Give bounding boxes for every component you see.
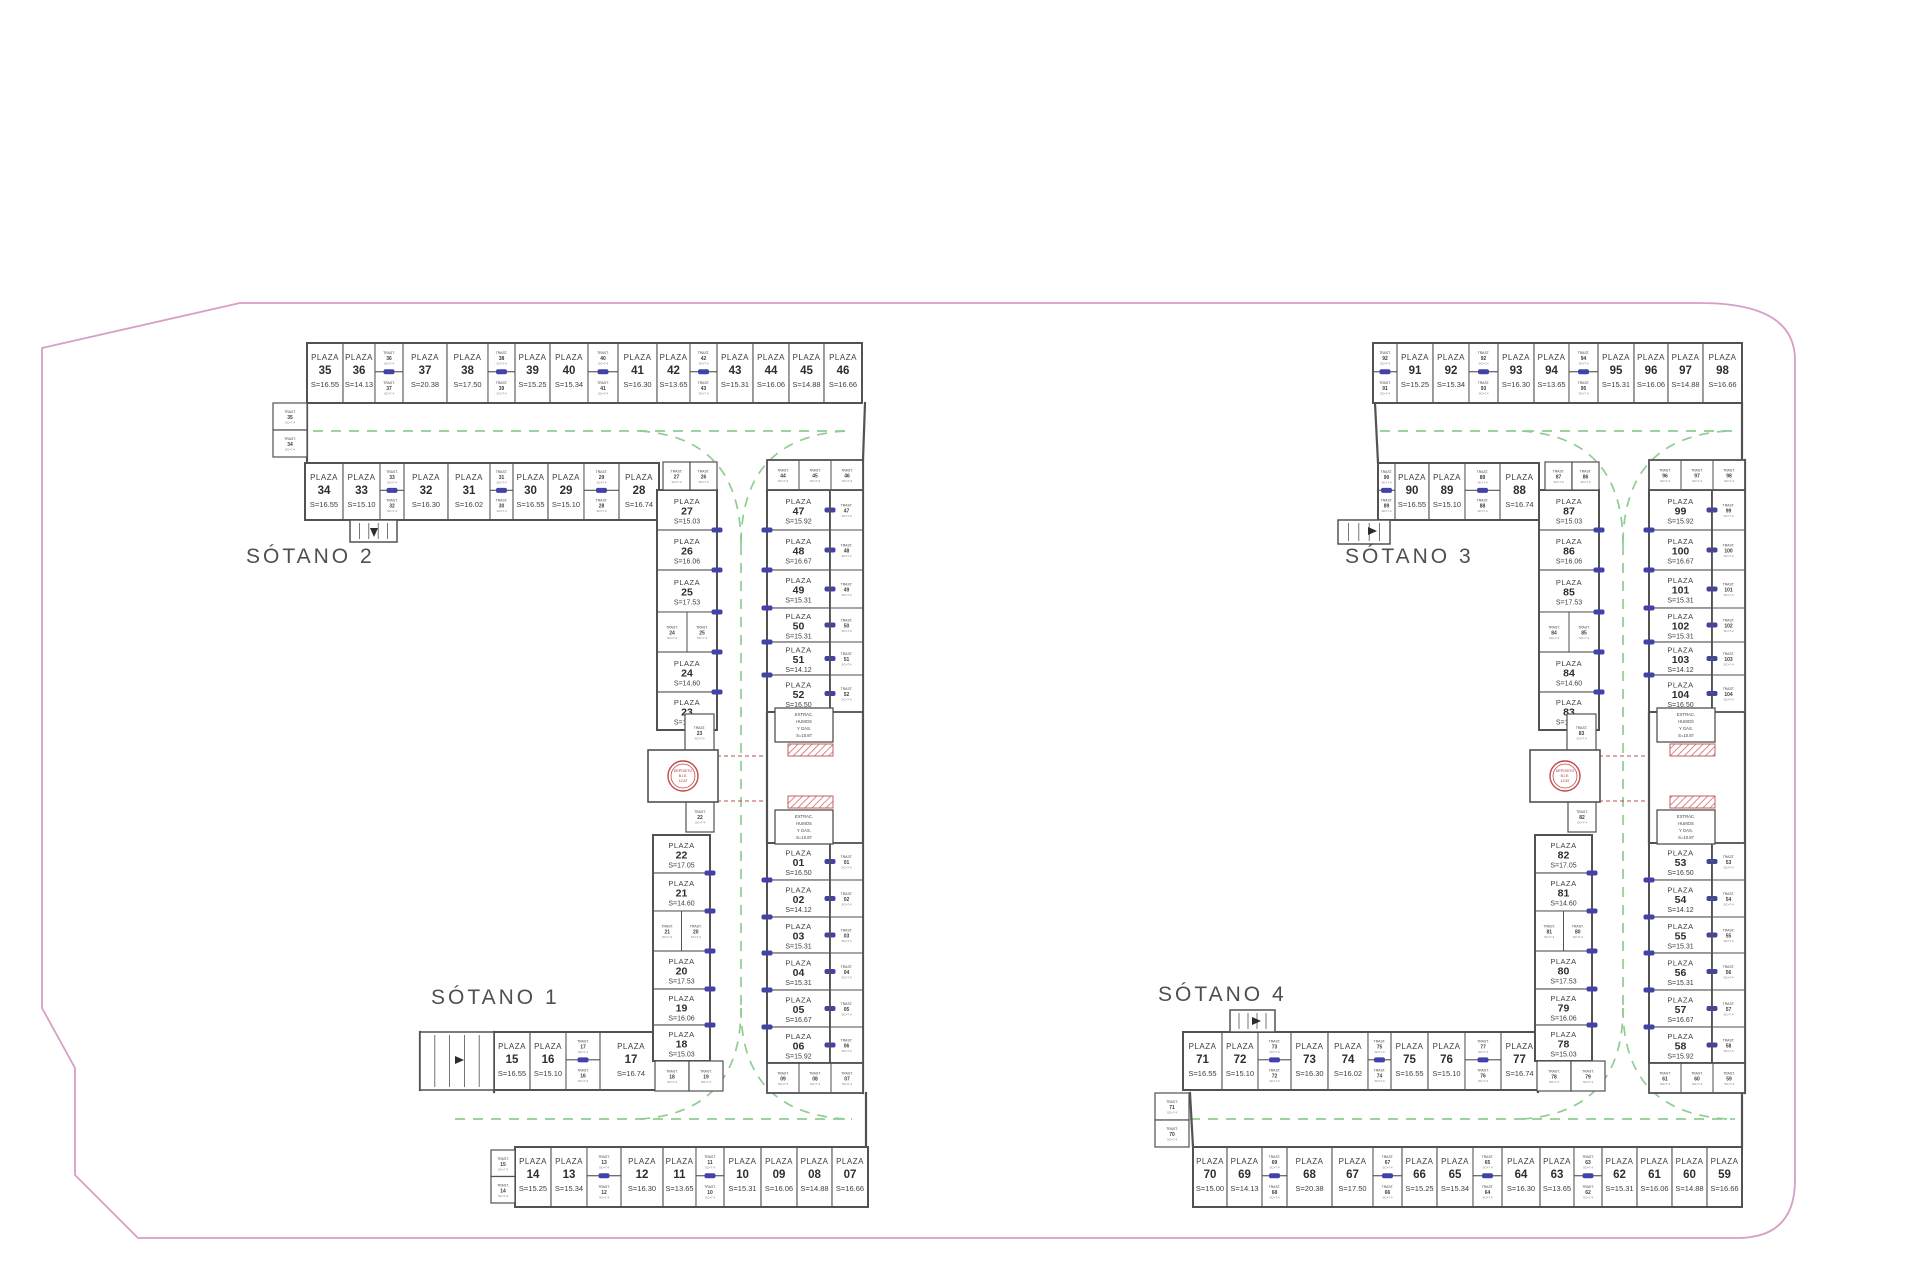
trastero-label: TRAST.: [497, 1183, 509, 1187]
door-leaf: [712, 650, 723, 655]
plaza-number: 49: [793, 585, 805, 597]
plaza-area: S=16.30: [1502, 380, 1530, 389]
trastero-label: TRAST.: [1723, 504, 1735, 508]
plaza-word: PLAZA: [625, 473, 653, 482]
plaza-word: PLAZA: [1602, 353, 1630, 362]
plaza-area: S=13.65: [1537, 380, 1565, 389]
trastero-label: TRAST.: [1548, 1070, 1560, 1074]
plaza-number: 13: [563, 1169, 576, 1181]
plaza-word: PLAZA: [345, 353, 373, 362]
block-sotano-2-1: PLAZA35S=16.55PLAZA36S=14.13TRAST.36SC=7…: [273, 343, 868, 1207]
plaza-number: 72: [1234, 1054, 1247, 1066]
trastero-label: TRAST.: [598, 1155, 610, 1159]
trastero-area: SC=7.4: [384, 361, 394, 365]
plaza-area: S=16.55: [1395, 1069, 1423, 1078]
plaza-number: 11: [673, 1169, 686, 1181]
plaza-word: PLAZA: [455, 473, 483, 482]
plaza-word: PLAZA: [1296, 1042, 1324, 1051]
plaza-number: 101: [1672, 585, 1690, 597]
trastero-area: SC=7.4: [1583, 1080, 1593, 1084]
plaza-word: PLAZA: [836, 1157, 864, 1166]
trastero-area: SC=7.4: [1477, 481, 1487, 485]
plaza-area: S=16.06: [668, 1016, 694, 1023]
plaza-number: 22: [676, 850, 688, 862]
extraction-room-label: S=10.87: [796, 835, 812, 840]
trastero-area: SC=7.4: [1477, 509, 1487, 513]
door-leaf: [1587, 909, 1598, 914]
trastero-label: TRAST.: [1578, 381, 1590, 385]
trastero-label: TRAST.: [1723, 1039, 1735, 1043]
door-leaf: [496, 369, 507, 374]
plaza-number: 55: [1675, 931, 1687, 943]
trastero-area: SC=7.4: [1374, 1079, 1384, 1083]
plaza-number: 20: [676, 966, 688, 978]
plaza-area: S=15.92: [1667, 519, 1693, 526]
plaza-area: S=15.31: [1667, 944, 1693, 951]
plaza-number: 64: [1515, 1169, 1528, 1181]
trastero-area: SC=7.4: [1482, 1165, 1492, 1169]
plaza-number: 45: [800, 365, 813, 377]
plaza-number: 67: [1346, 1169, 1359, 1181]
trastero-label: TRAST.: [1166, 1100, 1178, 1104]
door-leaf: [1269, 1057, 1280, 1062]
plaza-number: 21: [676, 888, 688, 900]
plaza-number: 41: [631, 365, 644, 377]
plaza-area: S=16.66: [1708, 380, 1736, 389]
trastero-area: SC=7.4: [1553, 480, 1563, 484]
plaza-word: PLAZA: [310, 473, 338, 482]
plaza-area: S=15.92: [785, 1054, 811, 1061]
door-leaf: [1644, 951, 1655, 956]
extraction-room-label: HUMOS: [1678, 821, 1694, 826]
plaza-area: S=16.66: [836, 1184, 864, 1193]
parking-floor-plan: PLAZA35S=16.55PLAZA36S=14.13TRAST.36SC=7…: [0, 0, 1920, 1280]
plaza-number: 96: [1645, 365, 1658, 377]
sotano-3-label: SÓTANO 3: [1345, 545, 1474, 569]
trastero-label: TRAST.: [1382, 1185, 1394, 1189]
plaza-number: 15: [506, 1054, 519, 1066]
wall-segment: [1190, 1093, 1193, 1147]
trastero-area: SC=7.4: [1381, 481, 1391, 485]
plaza-word: PLAZA: [1334, 1042, 1362, 1051]
plaza-number: 08: [808, 1169, 821, 1181]
plaza-area: S=16.06: [1550, 1016, 1576, 1023]
plaza-number: 81: [1558, 888, 1570, 900]
plaza-number: 33: [355, 485, 368, 497]
trastero-label: TRAST.: [1381, 470, 1393, 474]
trastero-label: TRAST.: [1478, 381, 1490, 385]
door-leaf: [762, 568, 773, 573]
plaza-word: PLAZA: [1538, 353, 1566, 362]
door-leaf: [698, 369, 709, 374]
trastero-label: TRAST.: [1553, 470, 1565, 474]
extraction-room-label: Y GAS.: [797, 828, 811, 833]
plaza-area: S=15.10: [1432, 1069, 1460, 1078]
door-leaf: [1644, 640, 1655, 645]
plaza-area: S=15.25: [1401, 380, 1429, 389]
door-leaf: [705, 1023, 716, 1028]
plaza-area: S=16.50: [785, 870, 811, 877]
plaza-area: S=15.10: [1433, 500, 1461, 509]
plaza-number: 32: [420, 485, 433, 497]
plaza-word: PLAZA: [454, 353, 482, 362]
trastero-area: SC=7.4: [671, 480, 681, 484]
trastero-label: TRAST.: [1723, 687, 1735, 691]
plaza-number: 68: [1303, 1169, 1316, 1181]
trastero-label: TRAST.: [1543, 925, 1555, 929]
plaza-area: S=16.30: [412, 500, 440, 509]
plaza-number: 09: [773, 1169, 786, 1181]
door-leaf: [387, 488, 398, 493]
trastero-label: TRAST.: [1723, 1072, 1735, 1076]
door-leaf: [1587, 987, 1598, 992]
trastero-label: TRAST.: [1482, 1155, 1494, 1159]
trastero-area: SC=7.4: [842, 1082, 852, 1086]
trastero-area: SC=7.4: [1380, 391, 1390, 395]
plaza-area: S=15.03: [1550, 1052, 1576, 1059]
trastero-area: SC=7.4: [662, 935, 672, 939]
plaza-area: S=15.03: [668, 1052, 694, 1059]
plaza-number: 30: [524, 485, 537, 497]
trastero-area: SC=7.4: [1692, 479, 1702, 483]
plaza-word: PLAZA: [519, 353, 547, 362]
plaza-number: 60: [1683, 1169, 1696, 1181]
plaza-area: S=15.31: [1602, 380, 1630, 389]
plaza-area: S=14.12: [1667, 667, 1693, 674]
door-leaf: [762, 915, 773, 920]
plaza-word: PLAZA: [829, 353, 857, 362]
extraction-room-label: Y GAS.: [1679, 828, 1693, 833]
trastero-area: SC=7.4: [1724, 1082, 1734, 1086]
plaza-number: 73: [1303, 1054, 1316, 1066]
trastero-label: TRAST.: [694, 726, 706, 730]
trastero-label: TRAST.: [597, 381, 609, 385]
fire-equipment-label: 12.87: [1561, 779, 1570, 783]
trastero-label: TRAST.: [1166, 1127, 1178, 1131]
plaza-area: S=15.34: [1437, 380, 1465, 389]
trastero-area: SC=7.4: [841, 976, 851, 980]
sotano-4-label: SÓTANO 4: [1158, 983, 1287, 1007]
plaza-number: 27: [681, 506, 693, 518]
trastero-area: SC=7.4: [596, 509, 606, 513]
sotano-2-label: SÓTANO 2: [246, 545, 375, 569]
trastero-area: SC=7.4: [841, 629, 851, 633]
floorplan-canvas: PLAZA35S=16.55PLAZA36S=14.13TRAST.36SC=7…: [0, 0, 1920, 1280]
plaza-word: PLAZA: [519, 1157, 547, 1166]
plaza-word: PLAZA: [1502, 353, 1530, 362]
trastero-area: SC=7.4: [841, 866, 851, 870]
trastero-label: TRAST.: [661, 925, 673, 929]
plaza-area: S=15.10: [534, 1069, 562, 1078]
trastero-label: TRAST.: [496, 351, 508, 355]
trastero-area: SC=7.4: [705, 1165, 715, 1169]
plaza-area: S=15.31: [1667, 634, 1693, 641]
extraction-room-label: EXTRAC.: [795, 814, 813, 819]
trastero-area: SC=7.4: [842, 479, 852, 483]
trastero-area: SC=7.4: [1381, 509, 1391, 513]
plaza-area: S=13.65: [659, 380, 687, 389]
plaza-word: PLAZA: [1709, 353, 1737, 362]
trastero-area: SC=7.4: [387, 509, 397, 513]
trastero-area: SC=7.4: [1578, 361, 1588, 365]
plaza-area: S=16.66: [829, 380, 857, 389]
plaza-word: PLAZA: [1437, 353, 1465, 362]
extraction-room-label: HUMOS: [796, 821, 812, 826]
plaza-area: S=16.55: [310, 500, 338, 509]
plaza-number: 94: [1545, 365, 1558, 377]
door-leaf: [705, 871, 716, 876]
trastero-area: SC=7.4: [598, 361, 608, 365]
trastero-label: TRAST.: [809, 1072, 821, 1076]
door-leaf: [1594, 690, 1605, 695]
ramp-entry: [1338, 520, 1390, 544]
plaza-area: S=15.31: [1667, 598, 1693, 605]
plaza-number: 10: [736, 1169, 749, 1181]
trastero-area: SC=7.4: [578, 1079, 588, 1083]
plaza-word: PLAZA: [1231, 1157, 1259, 1166]
plaza-area: S=15.34: [555, 1184, 583, 1193]
trastero-label: TRAST.: [577, 1068, 589, 1072]
door-leaf: [578, 1057, 589, 1062]
trastero-area: SC=7.4: [598, 391, 608, 395]
trastero-label: TRAST.: [841, 855, 853, 859]
trastero-label: TRAST.: [841, 929, 853, 933]
plaza-word: PLAZA: [412, 473, 440, 482]
plaza-area: S=13.65: [665, 1184, 693, 1193]
plaza-number: 75: [1403, 1054, 1416, 1066]
trastero-label: TRAST.: [596, 499, 608, 503]
plaza-number: 34: [318, 485, 331, 497]
trastero-label: TRAST.: [1381, 499, 1393, 503]
trastero-area: SC=7.4: [1577, 821, 1587, 825]
plaza-area: S=17.50: [453, 380, 481, 389]
plaza-word: PLAZA: [498, 1042, 526, 1051]
plaza-area: S=13.65: [1543, 1184, 1571, 1193]
plaza-number: 78: [1558, 1039, 1570, 1051]
plaza-number: 87: [1563, 506, 1575, 518]
trastero-area: SC=7.4: [1382, 1165, 1392, 1169]
trastero-label: TRAST.: [841, 1039, 853, 1043]
plaza-area: S=14.88: [1675, 1184, 1703, 1193]
plaza-area: S=17.53: [1556, 600, 1582, 607]
trastero-area: SC=7.4: [1269, 1165, 1279, 1169]
trastero-label: TRAST.: [1723, 892, 1735, 896]
plaza-area: S=16.66: [1710, 1184, 1738, 1193]
trastero-label: TRAST.: [1723, 583, 1735, 587]
plaza-area: S=16.02: [455, 500, 483, 509]
trastero-area: SC=7.4: [578, 1050, 588, 1054]
trastero-label: TRAST.: [1269, 1185, 1281, 1189]
plaza-number: 14: [527, 1169, 540, 1181]
plaza-number: 46: [837, 365, 850, 377]
trastero-area: SC=7.4: [810, 479, 820, 483]
plaza-area: S=16.67: [785, 1017, 811, 1024]
trastero-label: TRAST.: [597, 351, 609, 355]
trastero-area: SC=7.4: [596, 481, 606, 485]
trastero-area: SC=7.4: [701, 1080, 711, 1084]
trastero-area: SC=7.4: [1660, 1082, 1670, 1086]
block-sotano-3-4: TRAST.92SC=7.4TRAST.91SC=7.4PLAZA91S=15.…: [1155, 343, 1745, 1207]
trastero-label: TRAST.: [383, 351, 395, 355]
plaza-word: PLAZA: [793, 353, 821, 362]
door-leaf: [1644, 1025, 1655, 1030]
trastero-area: SC=7.4: [1580, 480, 1590, 484]
door-leaf: [762, 528, 773, 533]
plaza-area: S=14.12: [785, 907, 811, 914]
trastero-label: TRAST.: [841, 687, 853, 691]
trastero-area: SC=7.4: [1478, 1050, 1488, 1054]
plaza-number: 12: [636, 1169, 649, 1181]
plaza-area: S=16.55: [498, 1069, 526, 1078]
plaza-area: S=16.74: [617, 1069, 645, 1078]
plaza-number: 91: [1409, 365, 1422, 377]
plaza-number: 31: [463, 485, 476, 497]
plaza-number: 66: [1413, 1169, 1426, 1181]
plaza-word: PLAZA: [757, 353, 785, 362]
plaza-area: S=16.06: [757, 380, 785, 389]
plaza-number: 19: [676, 1003, 688, 1015]
plaza-word: PLAZA: [348, 473, 376, 482]
trastero-area: SC=7.4: [1382, 1195, 1392, 1199]
plaza-word: PLAZA: [1196, 1157, 1224, 1166]
trastero-area: SC=7.4: [1723, 514, 1733, 518]
door-leaf: [762, 951, 773, 956]
trastero-label: TRAST.: [1269, 1155, 1281, 1159]
trastero-area: SC=7.4: [698, 480, 708, 484]
door-leaf: [1380, 369, 1391, 374]
trastero-label: TRAST.: [841, 1002, 853, 1006]
extraction-room-label: HUMOS: [796, 719, 812, 724]
stairs: [788, 744, 833, 756]
plaza-area: S=16.06: [1556, 559, 1582, 566]
plaza-word: PLAZA: [628, 1157, 656, 1166]
plaza-word: PLAZA: [1398, 473, 1426, 482]
plaza-number: 44: [765, 365, 778, 377]
plaza-number: 50: [793, 621, 805, 633]
trastero-area: SC=7.4: [1269, 1195, 1279, 1199]
trastero-label: TRAST.: [841, 583, 853, 587]
wall-segment: [863, 403, 865, 460]
trastero-label: TRAST.: [1578, 351, 1590, 355]
trastero-area: SC=7.4: [1723, 1013, 1733, 1017]
trastero-area: SC=7.4: [841, 514, 851, 518]
extraction-room-label: EXTRAC.: [1677, 814, 1695, 819]
plaza-number: 36: [353, 365, 366, 377]
plaza-number: 80: [1558, 966, 1570, 978]
plaza-number: 63: [1551, 1169, 1564, 1181]
door-leaf: [1381, 488, 1392, 493]
trastero-label: TRAST.: [1582, 1070, 1594, 1074]
plaza-number: 99: [1675, 506, 1687, 518]
plaza-area: S=16.30: [1295, 1069, 1323, 1078]
trastero-area: SC=7.4: [1269, 1079, 1279, 1083]
plaza-area: S=15.92: [785, 519, 811, 526]
plaza-area: S=15.31: [785, 598, 811, 605]
plaza-area: S=15.10: [1226, 1069, 1254, 1078]
fire-equipment-label: DEPOSITO: [1556, 769, 1575, 773]
plaza-number: 57: [1675, 1004, 1687, 1016]
plaza-area: S=16.06: [1637, 380, 1665, 389]
plaza-area: S=14.12: [1667, 907, 1693, 914]
plaza-number: 24: [681, 668, 693, 680]
door-leaf: [596, 488, 607, 493]
trastero-label: TRAST.: [1269, 1039, 1281, 1043]
trastero-area: SC=7.4: [1478, 391, 1488, 395]
trastero-label: TRAST.: [1723, 544, 1735, 548]
trastero-area: SC=7.4: [697, 636, 707, 640]
trastero-label: TRAST.: [1477, 470, 1489, 474]
trastero-area: SC=7.4: [667, 1080, 677, 1084]
extraction-room-label: Y GAS.: [1679, 726, 1693, 731]
plaza-area: S=15.31: [785, 944, 811, 951]
plaza-number: 43: [729, 365, 742, 377]
door-leaf: [1478, 1057, 1489, 1062]
trastero-label: TRAST.: [1723, 855, 1735, 859]
plaza-number: 82: [1558, 850, 1570, 862]
trastero-label: TRAST.: [386, 499, 398, 503]
plaza-number: 28: [633, 485, 646, 497]
plaza-area: S=17.53: [1550, 979, 1576, 986]
plaza-word: PLAZA: [1543, 1157, 1571, 1166]
trastero-label: TRAST.: [1691, 1072, 1703, 1076]
plaza-number: 25: [681, 587, 693, 599]
plaza-number: 42: [667, 365, 680, 377]
plaza-word: PLAZA: [411, 353, 439, 362]
door-leaf: [1269, 1173, 1280, 1178]
trastero-label: TRAST.: [577, 1039, 589, 1043]
trastero-label: TRAST.: [284, 437, 296, 441]
plaza-area: S=16.55: [1398, 500, 1426, 509]
door-leaf: [705, 987, 716, 992]
trastero-label: TRAST.: [704, 1155, 716, 1159]
trastero-label: TRAST.: [1723, 965, 1735, 969]
plaza-word: PLAZA: [552, 473, 580, 482]
plaza-area: S=16.55: [516, 500, 544, 509]
plaza-number: 71: [1196, 1054, 1209, 1066]
fire-equipment-label: B.I.E.: [679, 774, 688, 778]
extraction-room-label: Y GAS.: [797, 726, 811, 731]
plaza-word: PLAZA: [1433, 1042, 1461, 1051]
plaza-number: 84: [1563, 668, 1575, 680]
trastero-label: TRAST.: [698, 351, 710, 355]
plaza-word: PLAZA: [617, 1042, 645, 1051]
trastero-area: SC=7.4: [1723, 866, 1733, 870]
door-leaf: [1587, 1023, 1598, 1028]
door-leaf: [1594, 610, 1605, 615]
plaza-number: 04: [793, 967, 805, 979]
trastero-area: SC=7.4: [1482, 1195, 1492, 1199]
door-leaf: [1644, 915, 1655, 920]
trastero-area: SC=7.4: [496, 391, 506, 395]
plaza-word: PLAZA: [801, 1157, 829, 1166]
plaza-area: S=15.92: [1667, 1054, 1693, 1061]
plaza-word: PLAZA: [1296, 1157, 1324, 1166]
plaza-word: PLAZA: [1641, 1157, 1669, 1166]
trastero-label: TRAST.: [1576, 726, 1588, 730]
door-leaf: [712, 610, 723, 615]
trastero-label: TRAST.: [841, 544, 853, 548]
extraction-room-label: S=10.87: [1678, 835, 1694, 840]
door-leaf: [1644, 606, 1655, 611]
plaza-area: S=16.67: [1667, 559, 1693, 566]
trastero-area: SC=7.4: [496, 361, 506, 365]
trastero-label: TRAST.: [841, 469, 853, 473]
plaza-number: 93: [1510, 365, 1523, 377]
plaza-word: PLAZA: [1506, 473, 1534, 482]
trastero-area: SC=7.4: [698, 361, 708, 365]
door-leaf: [1583, 1173, 1594, 1178]
trastero-area: SC=7.4: [1549, 636, 1559, 640]
